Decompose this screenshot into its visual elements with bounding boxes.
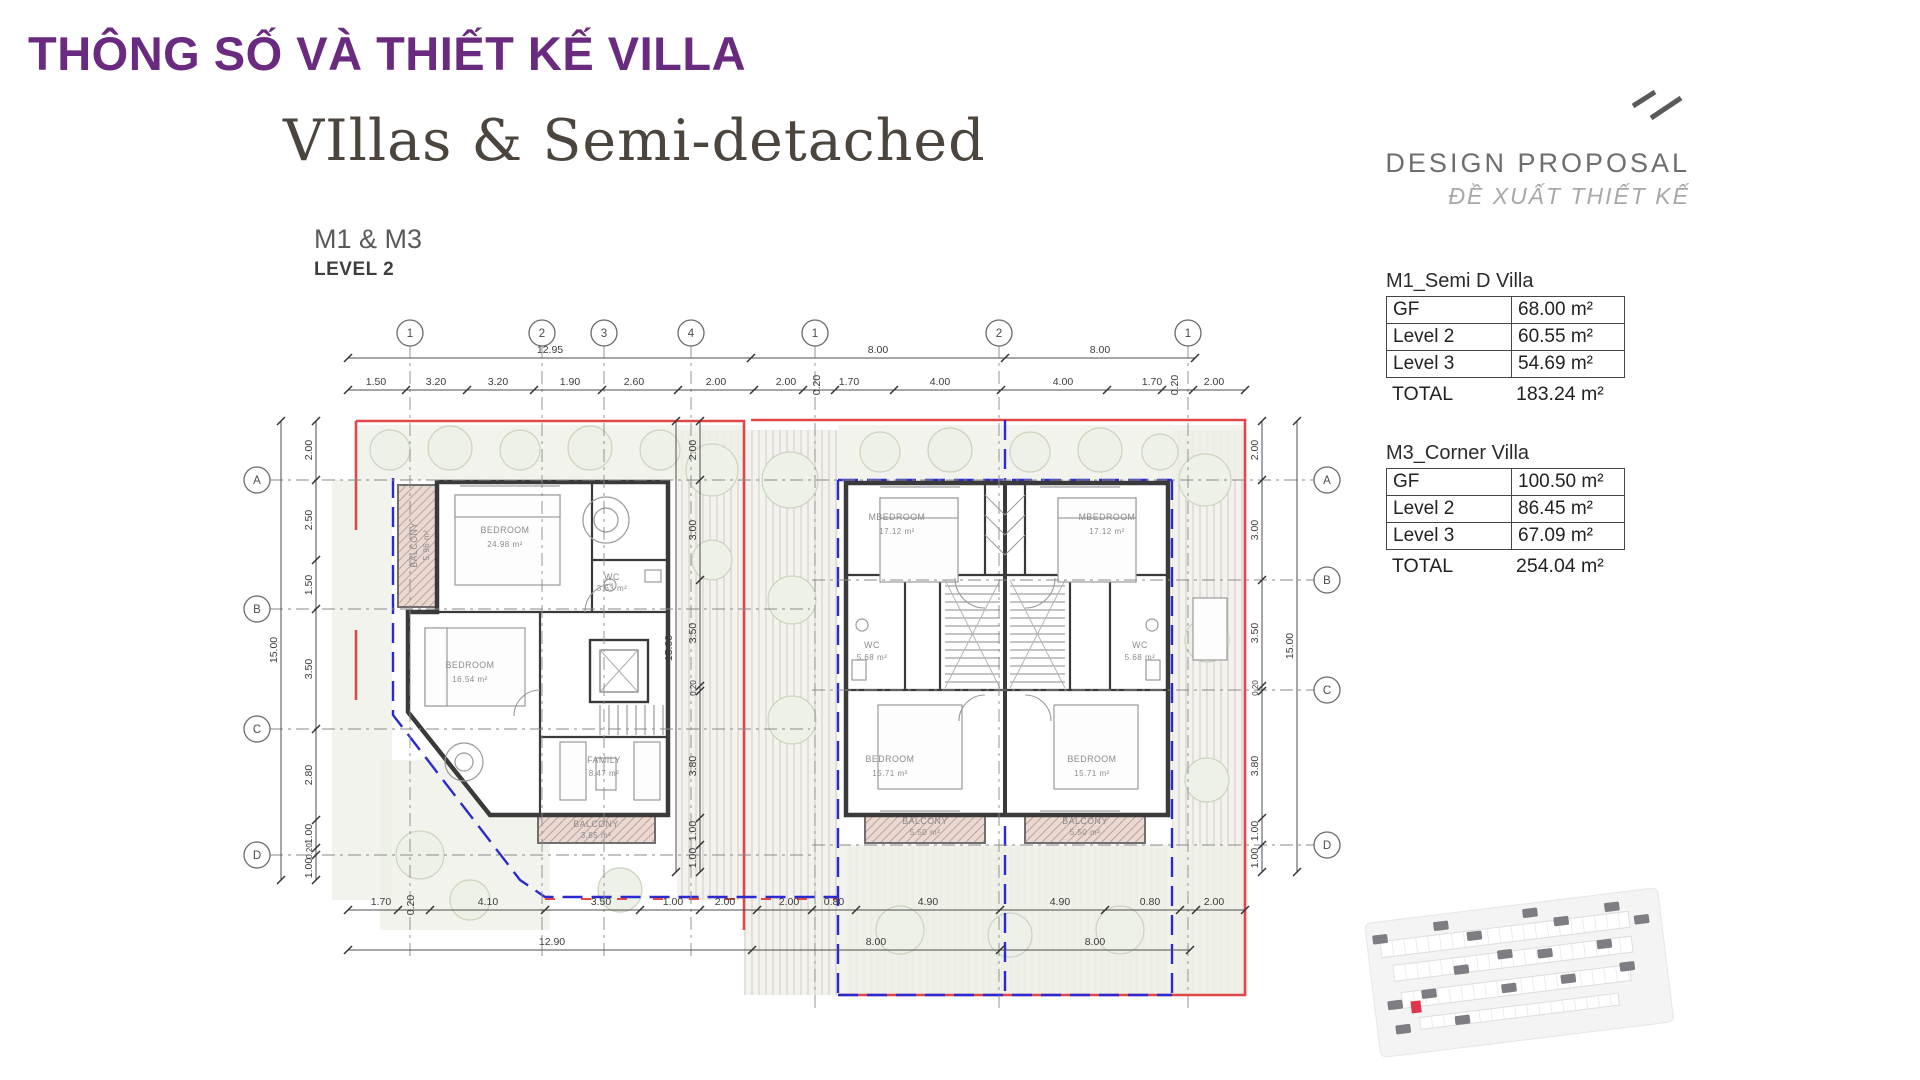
grid-bubble-label: 4 <box>688 328 695 340</box>
room-label: WC <box>604 572 620 582</box>
dim-label: 12.90 <box>539 936 565 948</box>
row-value: 68.00 m² <box>1512 297 1625 324</box>
table-row: Level 354.69 m² <box>1387 351 1625 378</box>
room-label: 3.85 m² <box>581 831 612 840</box>
dim-label: 8.00 <box>868 344 889 356</box>
dim-label: 3.50 <box>687 623 699 644</box>
dim-label: 2.00 <box>1204 376 1225 388</box>
dim-label: 4.90 <box>918 896 939 908</box>
dim-label: 1.00 <box>1249 821 1261 842</box>
grid-bubble-label: 2 <box>996 328 1002 340</box>
dim-label: 0.80 <box>1140 896 1161 908</box>
room-label: 5.96 m² <box>422 530 431 561</box>
dim-label: 0.20 <box>305 843 314 859</box>
furniture <box>455 495 560 517</box>
room-label: 5.68 m² <box>857 653 888 662</box>
row-label: GF <box>1387 469 1512 496</box>
tree <box>768 696 816 744</box>
dim-label: 2.00 <box>1249 440 1261 461</box>
furniture <box>1146 660 1160 680</box>
dim-label: 0.20 <box>1251 680 1260 696</box>
table-m3-total: TOTAL 254.04 m² <box>1386 555 1626 578</box>
dim-label: 3.80 <box>687 756 699 777</box>
tree <box>928 428 972 472</box>
room-label: FAMILY <box>587 755 621 765</box>
grid-bubble-label: C <box>1323 685 1331 697</box>
dim-label: 1.00 <box>663 896 684 908</box>
dim-label: 1.50 <box>303 575 315 596</box>
dim-label: 3.50 <box>591 896 612 908</box>
tree <box>500 430 540 470</box>
dim-label: 15.00 <box>268 637 280 663</box>
site-block <box>1596 939 1612 950</box>
dim-label: 1.00 <box>1249 848 1261 869</box>
room-label: BEDROOM <box>481 525 530 535</box>
dim-label: 3.00 <box>1249 520 1261 541</box>
site-block <box>1634 914 1650 925</box>
room-label: 5.68 m² <box>1125 653 1156 662</box>
room-label: WC <box>1132 640 1148 650</box>
room-label: 5.50 m² <box>1070 828 1101 837</box>
site-plan <box>1365 888 1674 1058</box>
table-row: GF68.00 m² <box>1387 297 1625 324</box>
site-block <box>1421 988 1437 999</box>
dim-label: 8.00 <box>866 936 887 948</box>
furniture <box>645 570 661 582</box>
grid-bubble-label: B <box>253 604 261 616</box>
dim-label: 1.00 <box>687 821 699 842</box>
dim-label: 0.20 <box>689 680 698 696</box>
tree <box>1078 428 1122 472</box>
tree <box>370 430 410 470</box>
dim-label: 0.20 <box>1169 375 1181 396</box>
row-label: GF <box>1387 297 1512 324</box>
room-label: 16.54 m² <box>452 675 488 684</box>
dim-label: 2.80 <box>303 765 315 786</box>
grid-bubble-label: D <box>253 850 261 862</box>
grid-bubble-label: 1 <box>407 328 413 340</box>
room-label: MBEDROOM <box>1079 512 1136 522</box>
row-value: 67.09 m² <box>1512 523 1625 550</box>
row-value: 60.55 m² <box>1512 324 1625 351</box>
room-label: 3.63 m² <box>597 584 628 593</box>
table-row: Level 260.55 m² <box>1387 324 1625 351</box>
dim-label: 3.50 <box>303 659 315 680</box>
dim-label: 1.70 <box>1142 376 1163 388</box>
furniture <box>1193 598 1227 660</box>
total-label: TOTAL <box>1386 555 1516 578</box>
site-plan-thumbnail <box>1365 888 1674 1058</box>
dim-label: 2.00 <box>1204 896 1225 908</box>
total-value: 254.04 m² <box>1516 555 1604 578</box>
tree <box>1142 434 1178 470</box>
room-label: BEDROOM <box>1068 754 1117 764</box>
site-block <box>1395 1024 1411 1035</box>
dim-label: 1.90 <box>560 376 581 388</box>
site-block <box>1497 949 1513 960</box>
tree <box>1010 432 1050 472</box>
total-value: 183.24 m² <box>1516 383 1604 406</box>
table-m1-total: TOTAL 183.24 m² <box>1386 383 1626 406</box>
dim-label: 1.70 <box>839 376 860 388</box>
room-label: BALCONY <box>1062 816 1108 826</box>
furniture <box>560 742 586 800</box>
table-m3: M3_Corner Villa GF100.50 m²Level 286.45 … <box>1386 442 1626 578</box>
row-label: Level 3 <box>1387 351 1512 378</box>
room-label: BALCONY <box>409 522 419 568</box>
room-label: 5.50 m² <box>910 828 941 837</box>
table-row: GF100.50 m² <box>1387 469 1625 496</box>
dim-label: 3.20 <box>488 376 509 388</box>
furniture <box>634 742 660 800</box>
site-block <box>1453 964 1469 975</box>
row-value: 54.69 m² <box>1512 351 1625 378</box>
dim-label: 1.00 <box>303 824 315 845</box>
dim-label: 1.50 <box>366 376 387 388</box>
room-label: 8.47 m² <box>589 769 620 778</box>
tree <box>1185 758 1229 802</box>
row-label: Level 3 <box>1387 523 1512 550</box>
dim-label: 8.00 <box>1090 344 1111 356</box>
grid-bubble-label: D <box>1323 840 1331 852</box>
table-m1: M1_Semi D Villa GF68.00 m²Level 260.55 m… <box>1386 270 1626 406</box>
dim-label: 0.20 <box>405 895 417 916</box>
row-value: 100.50 m² <box>1512 469 1625 496</box>
dim-label: 0.20 <box>811 375 823 396</box>
dim-label: 2.50 <box>303 510 315 531</box>
furniture <box>425 628 447 706</box>
dim-label: 1.00 <box>303 858 315 879</box>
site-block <box>1604 901 1620 912</box>
dim-label: 4.10 <box>478 896 499 908</box>
room-label: 15.71 m² <box>1074 769 1110 778</box>
tree <box>860 432 900 472</box>
dim-label: 2.00 <box>303 440 315 461</box>
dim-label: 1.00 <box>687 848 699 869</box>
dim-label: 2.00 <box>779 896 800 908</box>
row-label: Level 2 <box>1387 324 1512 351</box>
tree <box>692 540 732 580</box>
dim-label: 4.00 <box>1053 376 1074 388</box>
furniture <box>852 660 866 680</box>
grid-bubble-label: A <box>1323 475 1331 487</box>
dim-label: 3.20 <box>426 376 447 388</box>
floor-plan: 12.958.008.001.503.203.201.902.602.002.0… <box>0 0 1920 1080</box>
room-label: MBEDROOM <box>869 512 926 522</box>
room-label: 17.12 m² <box>1089 527 1125 536</box>
grid-bubble-label: 1 <box>812 328 818 340</box>
room-label: 15.71 m² <box>872 769 908 778</box>
site-highlight-unit <box>1410 1000 1421 1013</box>
dim-label: 0.80 <box>824 896 845 908</box>
tree <box>428 426 472 470</box>
grid-bubble-label: 2 <box>539 328 545 340</box>
dim-label: 3.80 <box>1249 756 1261 777</box>
slide: THÔNG SỐ VÀ THIẾT KẾ VILLA VIllas & Semi… <box>0 0 1920 1080</box>
site-block <box>1537 948 1553 959</box>
room-label: 17.12 m² <box>879 527 915 536</box>
grid-bubble-label: A <box>253 475 261 487</box>
grid-bubble-label: C <box>253 724 261 736</box>
tree <box>568 426 612 470</box>
grid-bubble-label: 1 <box>1185 328 1191 340</box>
dim-label: 2.00 <box>687 440 699 461</box>
site-block <box>1387 1000 1403 1011</box>
room-label: BEDROOM <box>866 754 915 764</box>
site-block <box>1455 1014 1471 1025</box>
site-block <box>1466 930 1482 941</box>
site-block <box>1372 934 1388 945</box>
table-row: Level 367.09 m² <box>1387 523 1625 550</box>
room-label: BALCONY <box>573 819 619 829</box>
dim-label: 15.00 <box>1284 633 1296 659</box>
dim-label: 8.00 <box>1085 936 1106 948</box>
table-row: Level 286.45 m² <box>1387 496 1625 523</box>
site-block <box>1501 983 1517 994</box>
table-m1-title: M1_Semi D Villa <box>1386 270 1626 293</box>
dim-label: 4.90 <box>1050 896 1071 908</box>
dim-label: 4.00 <box>930 376 951 388</box>
row-value: 86.45 m² <box>1512 496 1625 523</box>
dim-label: 3.00 <box>687 520 699 541</box>
dim-label: 3.50 <box>1249 623 1261 644</box>
site-block <box>1619 961 1635 972</box>
dim-label: 1.70 <box>371 896 392 908</box>
tree <box>768 576 816 624</box>
room-label: 24.98 m² <box>487 540 523 549</box>
area-tables: M1_Semi D Villa GF68.00 m²Level 260.55 m… <box>1386 270 1626 614</box>
site-block <box>1433 920 1449 931</box>
dim-label: 2.60 <box>624 376 645 388</box>
site-block <box>1560 973 1576 984</box>
room-label: WC <box>864 640 880 650</box>
dim-label: 2.00 <box>776 376 797 388</box>
room-label: BEDROOM <box>446 660 495 670</box>
tree <box>640 430 680 470</box>
dim-label: 15.00 <box>663 635 675 661</box>
table-m3-title: M3_Corner Villa <box>1386 442 1626 465</box>
site-block <box>1522 907 1538 918</box>
grid-bubble-label: B <box>1323 575 1331 587</box>
row-label: Level 2 <box>1387 496 1512 523</box>
room-label: BALCONY <box>902 816 948 826</box>
dim-label: 2.00 <box>706 376 727 388</box>
total-label: TOTAL <box>1386 383 1516 406</box>
dim-label: 2.00 <box>715 896 736 908</box>
grid-bubble-label: 3 <box>601 328 607 340</box>
site-block <box>1553 916 1569 927</box>
